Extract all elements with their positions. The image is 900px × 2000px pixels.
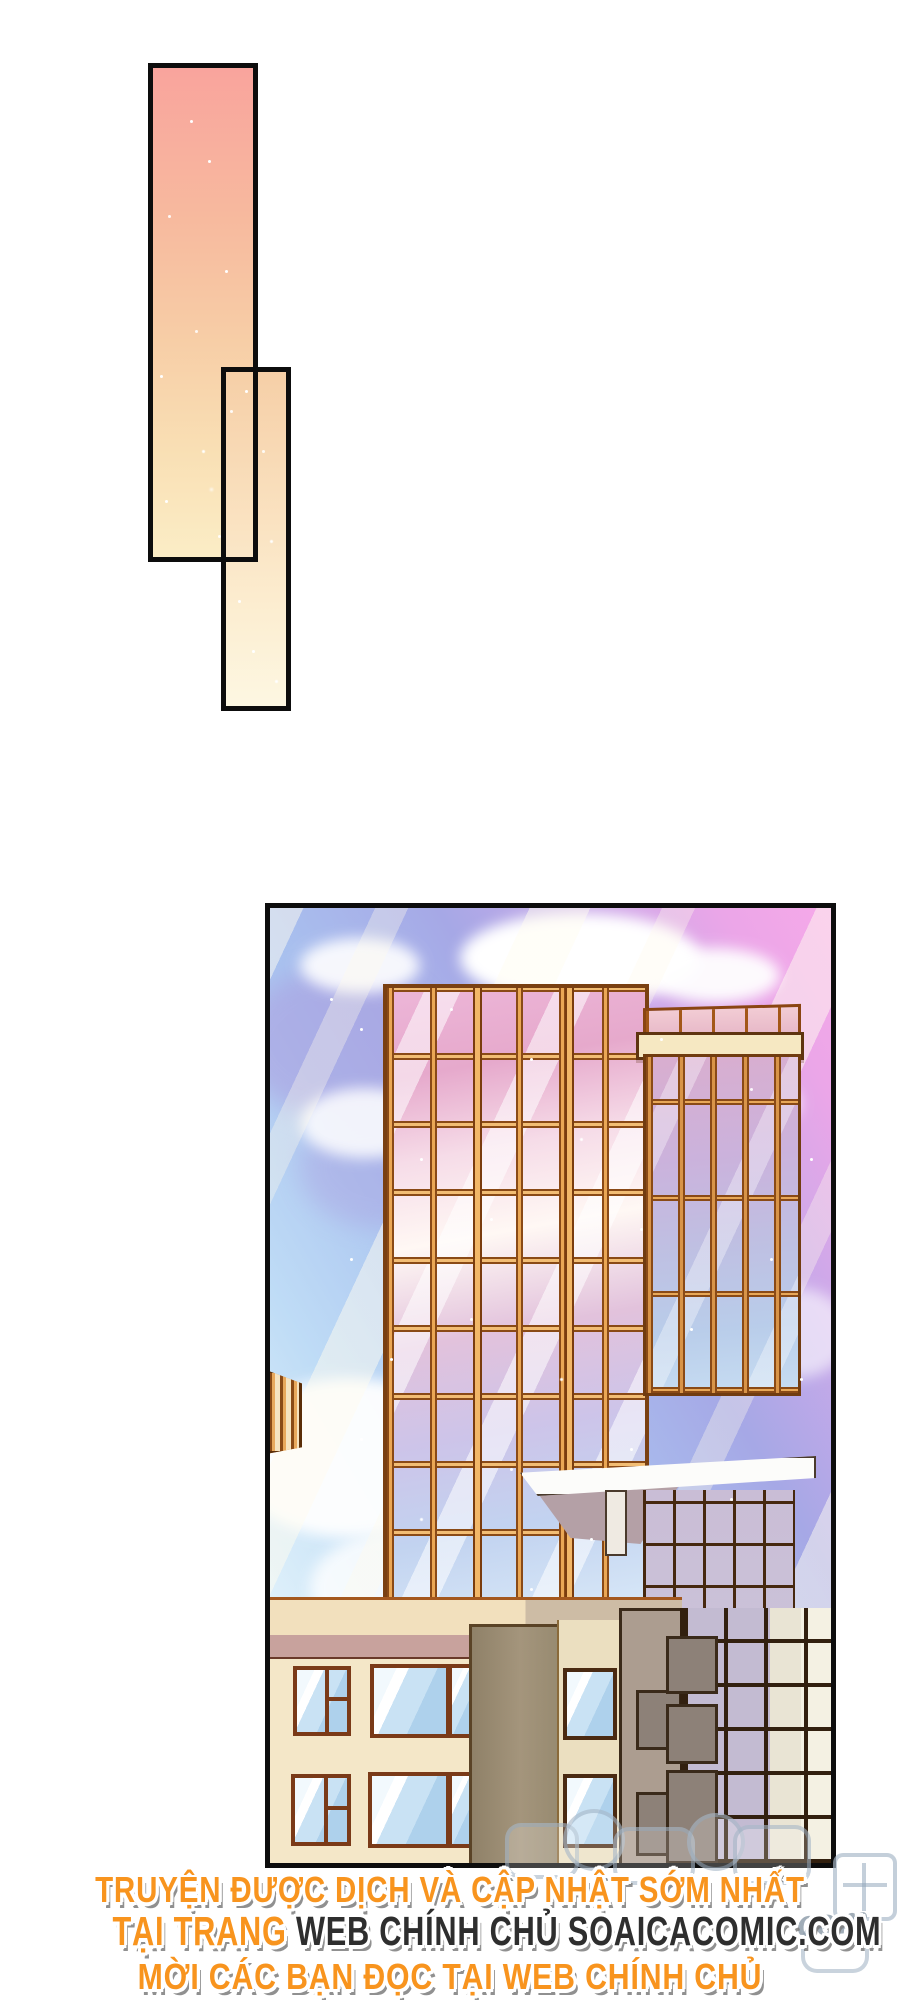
window (293, 1666, 351, 1736)
footer-line-3: MỜI CÁC BẠN ĐỌC TẠI WEB CHÍNH CHỦ (72, 1956, 828, 1998)
comic-page: com TRUYỆN ĐƯỢC DỊCH VÀ CẬP NHẬT SỚM NHẤ… (0, 0, 900, 2000)
balcony-box (666, 1704, 718, 1764)
footer-line-1: TRUYỆN ĐƯỢC DỊCH VÀ CẬP NHẬT SỚM NHẤT (81, 1869, 819, 1911)
window (370, 1664, 450, 1738)
lowrise-mauve-band (270, 1635, 496, 1659)
sparkle-dots-sky (330, 998, 333, 1001)
footer-line-2-orange: TẠI TRANG (113, 1908, 296, 1954)
city-scene-panel (265, 903, 836, 1868)
left-balcony-structure (266, 1370, 302, 1454)
deck-pillar (605, 1490, 627, 1556)
elevator-column (469, 1624, 563, 1868)
window (291, 1774, 351, 1846)
footer-line-2-dark: WEB CHÍNH CHỦ SOAICACOMIC.COM (296, 1908, 881, 1954)
balcony-box (666, 1770, 718, 1864)
sparkle-dots-panel (190, 120, 193, 123)
footer-line-2: TẠI TRANG WEB CHÍNH CHỦ SOAICACOMIC.COM (113, 1908, 788, 1955)
window (563, 1668, 617, 1740)
gradient-panel-2-frame (221, 367, 291, 711)
window (563, 1774, 617, 1848)
right-building-glass-wall (643, 1054, 801, 1396)
balcony-box (666, 1636, 718, 1694)
tower-post (473, 988, 482, 1604)
window (368, 1772, 450, 1848)
